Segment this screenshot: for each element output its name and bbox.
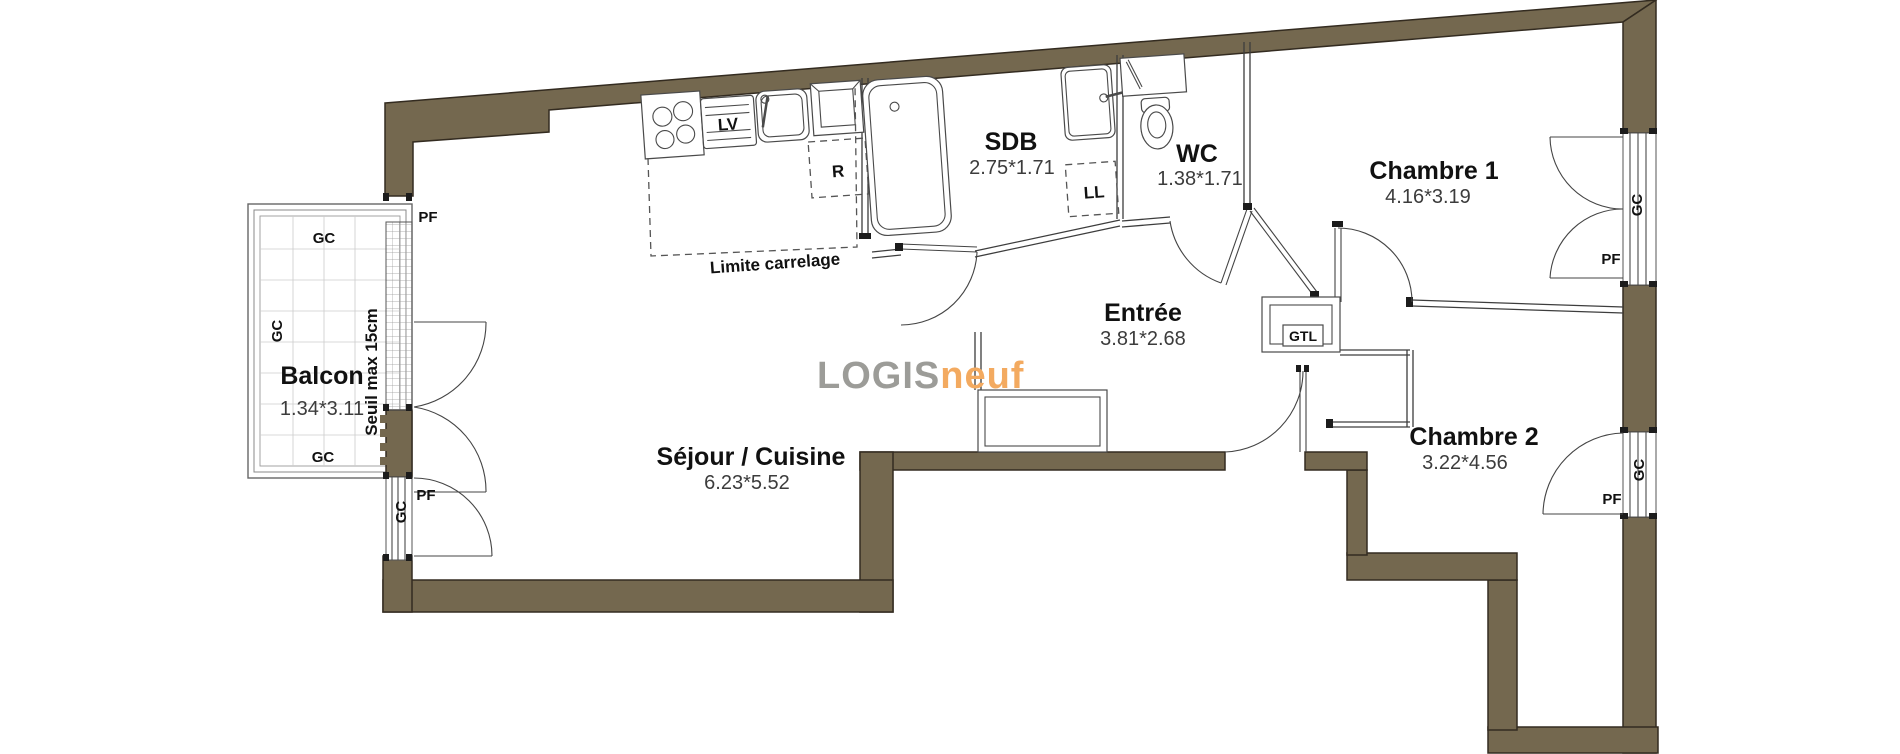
washbasin-icon (1061, 63, 1131, 140)
floor-plan-page: GTL Balcon 1.34*3.11 Séjour / Cuisine 6.… (0, 0, 1900, 754)
limite-carrelage-label: Limite carrelage (709, 249, 840, 277)
gc-label-balcony-top: GC (313, 230, 336, 247)
wall-sejour-bottom (383, 580, 893, 612)
lv-label: LV (717, 114, 739, 134)
wall-step-horizontal (1347, 553, 1517, 580)
pier-tooth (380, 415, 387, 423)
wc-door (1170, 209, 1252, 285)
room-title-sejour: Séjour / Cuisine (657, 443, 846, 471)
room-title-wc: WC (1176, 140, 1218, 168)
wall-bottom-right (1488, 727, 1658, 753)
room-dims-sdb: 2.75*1.71 (969, 157, 1055, 179)
gc-label-chambre2: GC (1631, 459, 1648, 482)
gc-label-sejour-window: GC (393, 501, 410, 524)
gc-label-balcony-bottom: GC (312, 449, 335, 466)
chambre1-door (1335, 228, 1412, 302)
room-dims-wc: 1.38*1.71 (1157, 168, 1243, 190)
wall-balcony-pier (386, 410, 412, 477)
wall-step-vertical (1488, 580, 1517, 730)
pf-label-chambre2: PF (1602, 491, 1621, 508)
room-dims-entree: 3.81*2.68 (1100, 328, 1186, 350)
gtl-box: GTL (1262, 297, 1340, 352)
chambre2-door (1225, 371, 1306, 452)
kitchen-sink-icon (755, 88, 809, 142)
floor-plan-svg: GTL Balcon 1.34*3.11 Séjour / Cuisine 6.… (0, 0, 1900, 754)
wall-sejour-post (383, 556, 412, 612)
sdb-door (901, 244, 977, 325)
room-dims-sejour: 6.23*5.52 (704, 472, 790, 494)
room-dims-chambre1: 4.16*3.19 (1385, 186, 1471, 208)
gtl-label: GTL (1289, 328, 1317, 344)
logisneuf-logo: LOGISneuf (817, 355, 1024, 397)
balcony-door-window (386, 222, 412, 410)
wall-chambre2-west (1347, 470, 1367, 555)
gc-label-chambre1: GC (1629, 194, 1646, 217)
ll-label: LL (1083, 182, 1105, 202)
pier-tooth (380, 443, 387, 451)
toilet-icon (1120, 54, 1190, 151)
wall-right-mid (1623, 285, 1656, 432)
bathtub-icon (862, 75, 953, 236)
wall-hall-south-east (1305, 452, 1367, 470)
stove-icon (641, 91, 704, 159)
room-title-entree: Entrée (1104, 299, 1182, 327)
room-title-sdb: SDB (985, 128, 1038, 156)
pf-label-chambre1: PF (1601, 251, 1620, 268)
fridge-label: R (831, 162, 845, 182)
gc-label-balcony-left: GC (269, 320, 286, 343)
seuil-label: Seuil max 15cm (362, 308, 381, 436)
room-dims-chambre2: 3.22*4.56 (1422, 452, 1508, 474)
logo-part-orange: neuf (940, 355, 1024, 397)
wall-hall-south-west (860, 452, 1225, 470)
room-title-chambre1: Chambre 1 (1369, 157, 1498, 185)
pier-tooth (380, 429, 387, 437)
pf-label-balcony: PF (418, 209, 437, 226)
wall-right-bottom (1623, 517, 1656, 753)
room-title-chambre2: Chambre 2 (1409, 423, 1538, 451)
balcony-door (414, 322, 486, 492)
logo-part-gray: LOGIS (817, 355, 940, 397)
pf-label-sejour-window: PF (416, 487, 435, 504)
room-dims-balcon: 1.34*3.11 (280, 398, 364, 420)
room-title-balcon: Balcon (280, 362, 363, 390)
pier-tooth (380, 457, 387, 465)
wall-right-top (1623, 0, 1656, 133)
front-door (1250, 208, 1317, 295)
closet (978, 390, 1107, 452)
